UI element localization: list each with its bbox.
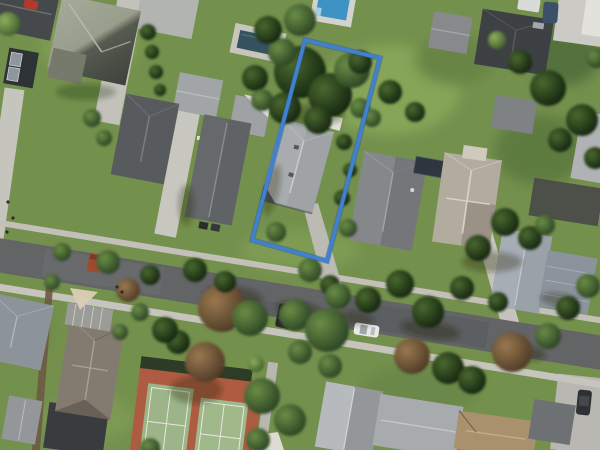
tree xyxy=(131,303,149,321)
hedge-bush xyxy=(154,84,166,96)
house-bottom-gray xyxy=(528,399,576,445)
tree xyxy=(266,222,286,242)
tree xyxy=(96,250,120,274)
tree xyxy=(298,258,322,282)
street-tree xyxy=(214,271,236,293)
tree xyxy=(140,265,160,285)
street-tree xyxy=(412,296,444,328)
person xyxy=(115,285,118,288)
tree xyxy=(44,274,60,290)
street-tree xyxy=(288,340,312,364)
autumn-tree xyxy=(116,278,140,302)
street-tree xyxy=(535,323,561,349)
bush xyxy=(96,130,112,146)
tree xyxy=(508,50,532,74)
tree xyxy=(112,324,128,340)
tree xyxy=(378,80,402,104)
autumn-tree xyxy=(492,332,532,372)
street-tree xyxy=(232,300,268,336)
person xyxy=(5,230,8,233)
street-tree xyxy=(355,287,381,313)
street-tree xyxy=(386,270,414,298)
dark-car xyxy=(576,389,593,415)
aerial-scene: Aerial photograph of a suburban resident… xyxy=(0,0,600,450)
solar-panel xyxy=(7,67,20,82)
aerial-photo: Aerial photograph of a suburban resident… xyxy=(0,0,600,450)
tree xyxy=(53,243,71,261)
tree xyxy=(530,70,566,106)
hedge-bush xyxy=(140,24,156,40)
house-mid-right-small xyxy=(491,95,538,134)
street-tree xyxy=(556,296,580,320)
hedge-bush xyxy=(149,65,163,79)
tree xyxy=(152,317,178,343)
person xyxy=(120,290,123,293)
tree xyxy=(339,219,357,237)
tree xyxy=(548,128,572,152)
tree xyxy=(465,235,491,261)
solar-panel xyxy=(9,52,22,67)
person xyxy=(11,216,14,219)
bush xyxy=(83,109,101,127)
house-bottom-gable xyxy=(315,381,384,450)
street-tree xyxy=(183,258,207,282)
tree xyxy=(566,104,598,136)
tree xyxy=(251,89,273,111)
person xyxy=(6,200,9,203)
tree xyxy=(284,4,316,36)
solar-shed xyxy=(3,48,39,89)
street-tree xyxy=(458,366,486,394)
tree xyxy=(254,16,282,44)
tree xyxy=(274,404,306,436)
hedge-bush xyxy=(145,45,159,59)
tree xyxy=(450,276,474,300)
round-bush xyxy=(248,356,264,372)
house-top-mid xyxy=(428,11,473,54)
blue-car xyxy=(542,2,558,24)
tree xyxy=(244,378,280,414)
tree xyxy=(491,208,519,236)
tree xyxy=(405,102,425,122)
tree xyxy=(488,292,508,312)
tree xyxy=(304,106,332,134)
street-tree xyxy=(318,354,342,378)
autumn-tree xyxy=(394,338,430,374)
autumn-tree xyxy=(185,342,225,382)
street-tree xyxy=(325,283,351,309)
tree xyxy=(336,134,352,150)
street-tree xyxy=(576,274,600,298)
tree xyxy=(535,215,555,235)
street-tree xyxy=(305,308,349,352)
tree xyxy=(242,65,268,91)
palm-tree xyxy=(488,31,506,49)
